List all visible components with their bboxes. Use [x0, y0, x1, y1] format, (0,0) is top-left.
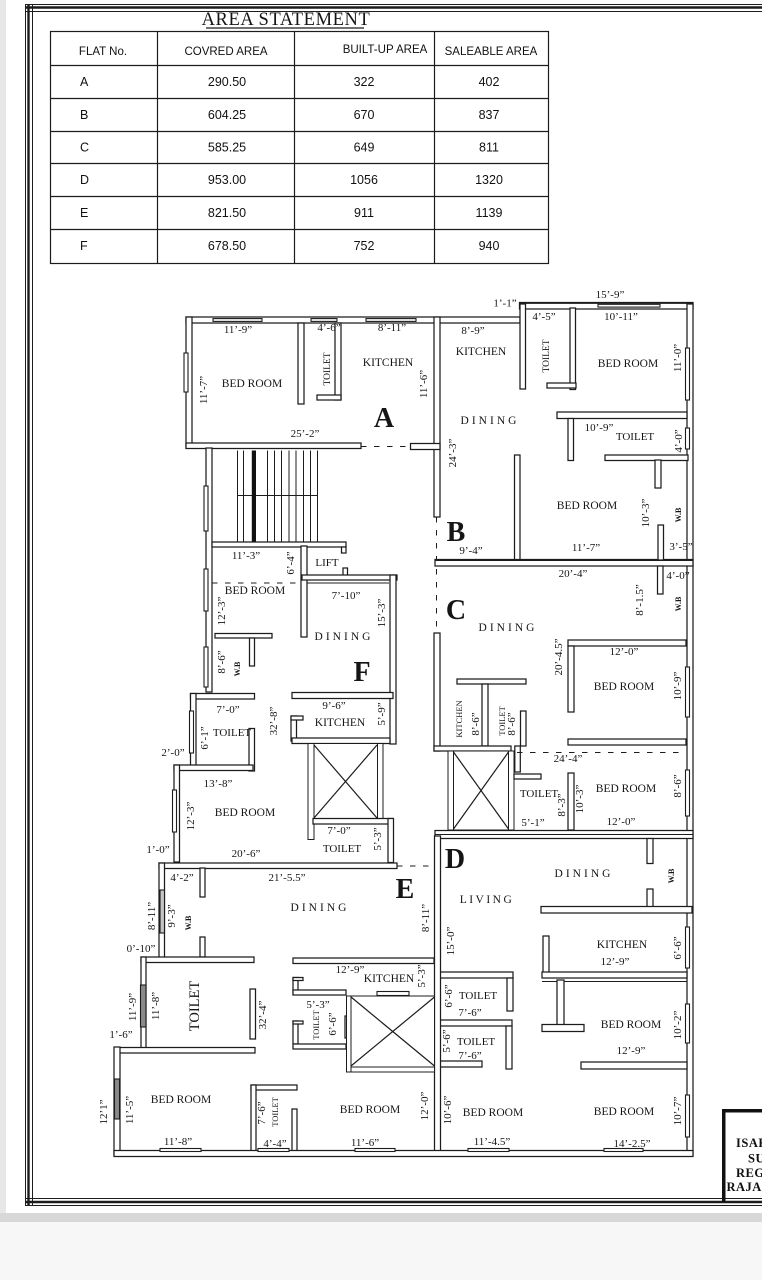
svg-text:E: E [396, 874, 415, 905]
svg-text:953.00: 953.00 [208, 173, 246, 187]
svg-text:BED ROOM: BED ROOM [598, 358, 658, 370]
svg-text:KITCHEN: KITCHEN [454, 700, 464, 737]
svg-text:F: F [80, 239, 88, 253]
svg-text:6’-4”: 6’-4” [285, 551, 297, 574]
svg-text:C: C [80, 141, 89, 155]
svg-text:ISAK: ISAK [736, 1136, 762, 1150]
svg-text:TOILET: TOILET [270, 1096, 280, 1126]
svg-text:8’-6”: 8’-6” [672, 774, 684, 797]
svg-text:8’-9”: 8’-9” [461, 325, 484, 337]
svg-text:8’-3”: 8’-3” [556, 793, 568, 816]
svg-text:BED ROOM: BED ROOM [557, 500, 617, 512]
svg-text:11’-6”: 11’-6” [418, 370, 430, 398]
svg-text:BED ROOM: BED ROOM [594, 1106, 654, 1118]
svg-text:4’-0”: 4’-0” [666, 570, 689, 582]
svg-text:W.B: W.B [233, 661, 242, 676]
svg-text:11’-8”: 11’-8” [150, 992, 162, 1020]
svg-text:670: 670 [354, 108, 375, 122]
svg-text:TOILET: TOILET [459, 990, 498, 1002]
svg-text:10’-7”: 10’-7” [672, 1097, 684, 1126]
svg-text:12’-0”: 12’-0” [610, 646, 639, 658]
svg-text:24’-4”: 24’-4” [554, 753, 583, 765]
svg-text:10’-3”: 10’-3” [640, 499, 652, 528]
svg-text:11’-3”: 11’-3” [232, 550, 260, 562]
svg-text:322: 322 [354, 75, 375, 89]
svg-text:BED ROOM: BED ROOM [215, 807, 275, 819]
svg-text:12’-9”: 12’-9” [601, 956, 630, 968]
svg-text:11’-4.5”: 11’-4.5” [474, 1136, 511, 1148]
svg-text:BED ROOM: BED ROOM [340, 1104, 400, 1116]
svg-text:A: A [374, 403, 395, 434]
svg-text:SALEABLE AREA: SALEABLE AREA [445, 46, 538, 58]
svg-text:1056: 1056 [350, 173, 378, 187]
svg-text:5’-9”: 5’-9” [376, 702, 388, 725]
svg-text:1’-6”: 1’-6” [109, 1029, 132, 1041]
svg-text:BED ROOM: BED ROOM [225, 585, 285, 597]
svg-text:LIFT: LIFT [315, 557, 339, 569]
svg-text:11’-9”: 11’-9” [127, 993, 139, 1021]
svg-text:4’-6”: 4’-6” [317, 322, 340, 334]
svg-text:32’-8”: 32’-8” [268, 707, 280, 736]
svg-text:3’-5”: 3’-5” [669, 541, 692, 553]
svg-text:13’-8”: 13’-8” [204, 778, 233, 790]
svg-text:11’-7”: 11’-7” [572, 542, 600, 554]
svg-text:KITCHEN: KITCHEN [597, 939, 648, 951]
svg-text:KITCHEN: KITCHEN [364, 973, 415, 985]
svg-text:2’-0”: 2’-0” [161, 747, 184, 759]
svg-text:BED ROOM: BED ROOM [222, 378, 282, 390]
svg-text:6’-6”: 6’-6” [327, 1012, 339, 1035]
svg-text:BED ROOM: BED ROOM [601, 1019, 661, 1031]
svg-text:11’-6”: 11’-6” [351, 1137, 379, 1149]
svg-text:11’-9”: 11’-9” [224, 324, 252, 336]
svg-text:9’-3”: 9’-3” [166, 904, 178, 927]
svg-text:B: B [80, 108, 88, 122]
svg-text:12’-0”: 12’-0” [607, 816, 636, 828]
svg-text:1’-0”: 1’-0” [146, 844, 169, 856]
svg-text:RAJAR: RAJAR [727, 1180, 762, 1194]
svg-text:837: 837 [479, 108, 500, 122]
svg-text:8’-6”: 8’-6” [470, 712, 482, 735]
svg-text:811: 811 [479, 141, 499, 155]
svg-text:TOILET: TOILET [520, 788, 559, 800]
svg-text:TOILET: TOILET [311, 1009, 321, 1039]
svg-text:11’-7”: 11’-7” [198, 376, 210, 404]
svg-text:5’-6”: 5’-6” [441, 1029, 453, 1052]
svg-text:FLAT No.: FLAT No. [79, 46, 127, 58]
svg-text:12’-9”: 12’-9” [617, 1045, 646, 1057]
svg-text:7’-0”: 7’-0” [327, 825, 350, 837]
svg-text:15’-9”: 15’-9” [596, 289, 625, 301]
svg-text:DINING: DINING [315, 631, 374, 643]
svg-text:10’-2”: 10’-2” [672, 1011, 684, 1040]
svg-text:DINING: DINING [479, 622, 538, 634]
svg-text:B: B [447, 517, 466, 548]
svg-text:TOILET: TOILET [213, 727, 252, 739]
svg-text:11’-0”: 11’-0” [672, 344, 684, 372]
svg-text:5’-3”: 5’-3” [372, 827, 384, 850]
svg-text:KITCHEN: KITCHEN [315, 717, 366, 729]
svg-text:678.50: 678.50 [208, 239, 246, 253]
svg-text:BUILT-UP AREA: BUILT-UP AREA [343, 44, 428, 56]
svg-text:D: D [445, 844, 465, 875]
svg-text:KITCHEN: KITCHEN [363, 357, 414, 369]
svg-text:7’-0”: 7’-0” [216, 704, 239, 716]
svg-text:5’-1”: 5’-1” [521, 817, 544, 829]
svg-text:C: C [446, 595, 466, 626]
svg-text:10’-9”: 10’-9” [585, 422, 614, 434]
svg-text:TOILET: TOILET [457, 1036, 496, 1048]
svg-text:BED ROOM: BED ROOM [463, 1107, 523, 1119]
svg-text:25’-2”: 25’-2” [291, 428, 320, 440]
svg-text:585.25: 585.25 [208, 141, 246, 155]
svg-text:KITCHEN: KITCHEN [456, 346, 507, 358]
svg-text:20’-4.5”: 20’-4.5” [553, 638, 565, 675]
svg-text:BED ROOM: BED ROOM [594, 681, 654, 693]
svg-text:TOILET: TOILET [542, 339, 552, 372]
svg-text:6’-6”: 6’-6” [672, 936, 684, 959]
svg-text:8’-6”: 8’-6” [506, 712, 518, 735]
svg-text:E: E [80, 206, 88, 220]
svg-text:821.50: 821.50 [208, 206, 246, 220]
svg-text:7’-10”: 7’-10” [332, 590, 361, 602]
svg-text:SU: SU [748, 1152, 762, 1166]
svg-text:402: 402 [479, 75, 500, 89]
svg-text:7’-6”: 7’-6” [458, 1050, 481, 1062]
svg-text:8’-1.5”: 8’-1.5” [634, 584, 646, 616]
svg-text:DINING: DINING [555, 868, 614, 880]
svg-text:LIVING: LIVING [460, 894, 515, 906]
svg-text:BED ROOM: BED ROOM [151, 1094, 211, 1106]
svg-text:290.50: 290.50 [208, 75, 246, 89]
svg-text:20’-4”: 20’-4” [559, 568, 588, 580]
svg-text:AREA STATEMENT: AREA STATEMENT [202, 10, 371, 30]
svg-text:940: 940 [479, 239, 500, 253]
svg-text:7’-6”: 7’-6” [458, 1007, 481, 1019]
svg-text:10’-9”: 10’-9” [672, 672, 684, 701]
svg-text:0’-10”: 0’-10” [127, 943, 156, 955]
svg-text:15’-3”: 15’-3” [376, 599, 388, 628]
svg-text:12’-0”: 12’-0” [419, 1092, 431, 1121]
svg-text:12’-3”: 12’-3” [185, 802, 197, 831]
svg-text:7’-6”: 7’-6” [256, 1101, 268, 1124]
svg-text:12’1”: 12’1” [98, 1099, 110, 1124]
svg-text:W.B: W.B [674, 596, 683, 611]
svg-text:752: 752 [354, 239, 375, 253]
svg-text:TOILET: TOILET [616, 431, 655, 443]
svg-text:10’-6”: 10’-6” [442, 1096, 454, 1125]
svg-text:4’-5”: 4’-5” [532, 311, 555, 323]
svg-text:911: 911 [354, 206, 374, 220]
svg-text:8’-11”: 8’-11” [146, 902, 158, 930]
svg-text:8’-6”: 8’-6” [216, 650, 228, 673]
svg-text:20’-6”: 20’-6” [232, 848, 261, 860]
svg-text:TOILET: TOILET [187, 981, 203, 1032]
svg-text:BED ROOM: BED ROOM [596, 783, 656, 795]
svg-text:11’-8”: 11’-8” [164, 1136, 192, 1148]
svg-text:10’-11”: 10’-11” [604, 311, 638, 323]
svg-text:6’-6”: 6’-6” [443, 984, 455, 1007]
svg-text:5’-3”: 5’-3” [306, 999, 329, 1011]
svg-text:F: F [353, 657, 370, 688]
svg-text:W.B: W.B [667, 868, 676, 883]
svg-text:DINING: DINING [461, 415, 520, 427]
svg-text:12’-9”: 12’-9” [336, 964, 365, 976]
svg-text:9’-4”: 9’-4” [459, 545, 482, 557]
svg-text:5’-3”: 5’-3” [416, 964, 428, 987]
svg-text:TOILET: TOILET [323, 843, 362, 855]
svg-text:W.B: W.B [674, 507, 683, 522]
svg-text:9’-6”: 9’-6” [322, 700, 345, 712]
svg-text:649: 649 [354, 141, 375, 155]
svg-text:DINING: DINING [291, 902, 350, 914]
svg-text:REGI: REGI [736, 1166, 762, 1180]
svg-text:6’-1”: 6’-1” [199, 726, 211, 749]
svg-text:15’-0”: 15’-0” [445, 927, 457, 956]
svg-text:A: A [80, 75, 89, 89]
svg-text:8’-11”: 8’-11” [378, 322, 406, 334]
svg-text:4’-2”: 4’-2” [170, 872, 193, 884]
svg-text:8’-11”: 8’-11” [420, 904, 432, 932]
svg-text:D: D [80, 173, 89, 187]
svg-text:11’-5”: 11’-5” [124, 1096, 136, 1124]
svg-text:32’-4”: 32’-4” [257, 1001, 269, 1030]
svg-text:4’-0”: 4’-0” [673, 429, 685, 452]
svg-text:604.25: 604.25 [208, 108, 246, 122]
svg-text:TOILET: TOILET [323, 352, 333, 385]
svg-text:12’-3”: 12’-3” [216, 597, 228, 626]
svg-text:10’-3”: 10’-3” [574, 785, 586, 814]
svg-text:W.B: W.B [184, 915, 193, 930]
svg-text:24’-3”: 24’-3” [447, 439, 459, 468]
svg-text:COVRED AREA: COVRED AREA [184, 46, 267, 58]
svg-text:1’-1”: 1’-1” [493, 298, 516, 310]
svg-text:1139: 1139 [476, 206, 503, 220]
svg-text:21’-5.5”: 21’-5.5” [269, 872, 306, 884]
svg-text:1320: 1320 [475, 173, 503, 187]
